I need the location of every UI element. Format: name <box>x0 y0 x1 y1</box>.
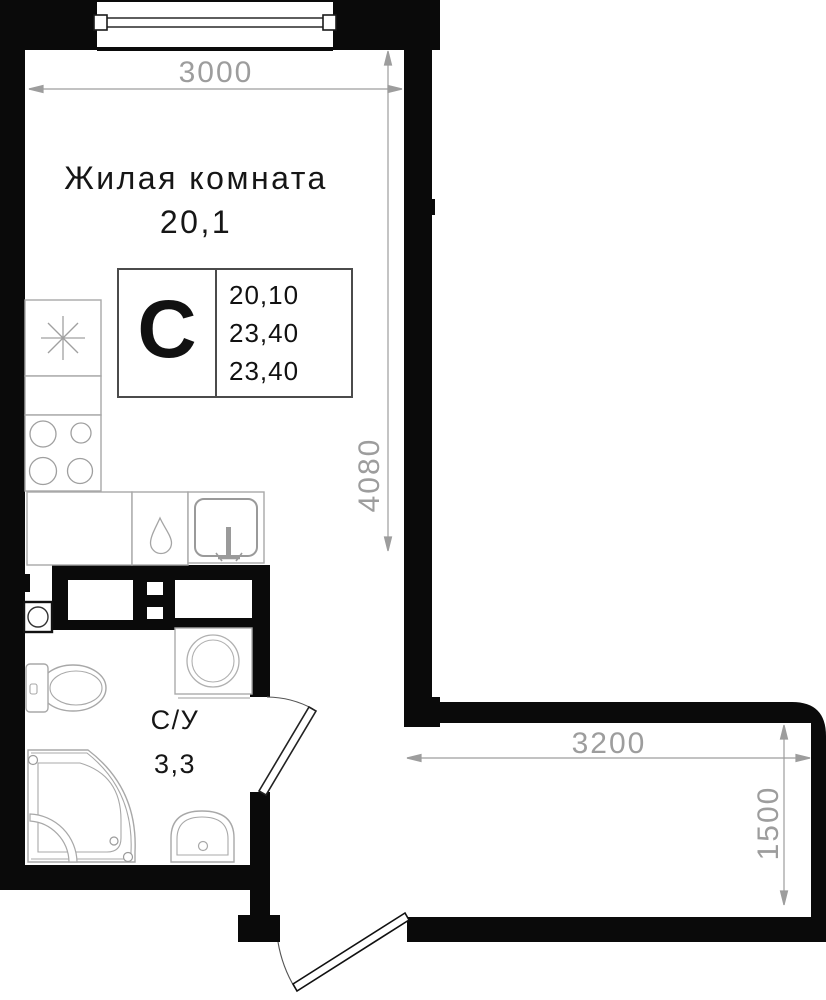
window-icon <box>94 15 336 30</box>
dim-text-room-height: 4080 <box>353 415 387 535</box>
window-glazing <box>95 18 335 27</box>
top-wall-right <box>333 0 440 50</box>
unit-area-living: 20,10 <box>229 276 351 314</box>
vent-shaft-icon <box>24 602 52 632</box>
wall-joint-left <box>25 574 30 592</box>
bath-door-icon <box>259 697 316 795</box>
living-room-area: 20,1 <box>36 200 356 244</box>
bathroom-label: С/У 3,3 <box>110 698 240 786</box>
entrance-door-leaf <box>293 913 409 991</box>
dim-text-corridor-depth: 1500 <box>752 763 786 883</box>
shaft-square-2 <box>147 607 163 619</box>
bathroom-name: С/У <box>110 698 240 742</box>
bath-bottom-wall <box>0 865 252 890</box>
unit-stamp-values: 20,10 23,40 23,40 <box>217 270 351 396</box>
washing-machine-icon <box>175 628 252 698</box>
kitchen-counter-2 <box>27 492 132 565</box>
dim-text-room-width: 3000 <box>136 56 296 90</box>
shaft-square-1 <box>147 582 163 595</box>
living-room-label: Жилая комната 20,1 <box>36 156 356 244</box>
kitchen-counter-1 <box>25 376 101 415</box>
toilet-icon <box>26 664 106 712</box>
bath-door-arc <box>267 697 313 709</box>
right-wall <box>404 48 432 700</box>
entry-block <box>238 915 280 942</box>
shaft-niche-b <box>175 580 252 618</box>
entrance-door-icon <box>278 913 409 991</box>
plan-drawing <box>0 0 826 1000</box>
window-head <box>97 0 333 2</box>
window-sill <box>97 47 333 51</box>
shaft-niche-a <box>68 580 133 620</box>
shower-hinge-top <box>29 756 38 765</box>
wall-joint-right <box>430 199 435 215</box>
window-cap-right <box>323 15 336 30</box>
bath-door-leaf <box>259 707 316 795</box>
divider-column <box>250 565 270 697</box>
entrance-door-arc <box>278 942 295 988</box>
unit-area-total: 23,40 <box>229 314 351 352</box>
unit-type-letter: С <box>119 270 217 396</box>
window-cap-left <box>94 15 107 30</box>
unit-area-reduced: 23,40 <box>229 352 351 390</box>
living-room-name: Жилая комната <box>36 156 356 200</box>
lower-column <box>250 792 270 917</box>
dim-text-corridor-width: 3200 <box>529 727 689 761</box>
top-wall-left <box>0 0 97 50</box>
washbasin-icon <box>171 811 234 862</box>
shower-hinge-bottom <box>124 853 133 862</box>
bathroom-area: 3,3 <box>110 742 240 786</box>
floor-plan: Жилая комната 20,1 С 20,10 23,40 23,40 С… <box>0 0 826 1000</box>
left-wall <box>0 0 25 890</box>
unit-stamp: С 20,10 23,40 23,40 <box>117 268 353 398</box>
